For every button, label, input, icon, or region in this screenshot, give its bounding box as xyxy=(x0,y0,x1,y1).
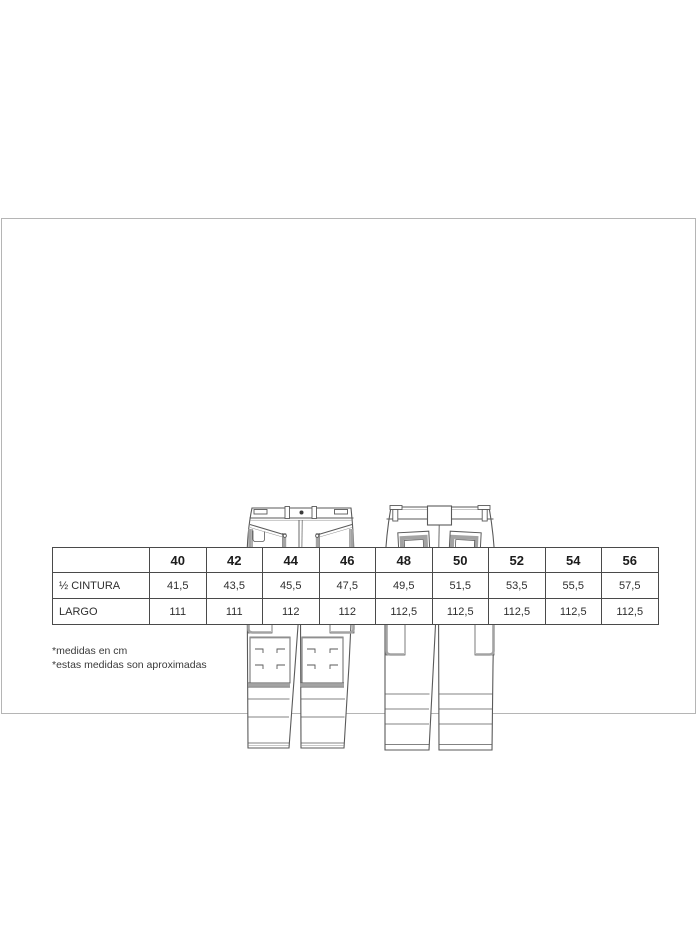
measurement-cell: 112,5 xyxy=(489,599,546,625)
measurement-cell: 49,5 xyxy=(376,573,433,599)
size-header-cell: 50 xyxy=(432,548,489,573)
row-label-largo: LARGO xyxy=(53,599,150,625)
pants-back-drawing-icon xyxy=(384,503,496,753)
size-header-cell: 46 xyxy=(319,548,376,573)
size-header-cell: 44 xyxy=(263,548,320,573)
measurement-cell: 112,5 xyxy=(602,599,659,625)
measurement-cell: 111 xyxy=(206,599,263,625)
measurement-cell: 41,5 xyxy=(150,573,207,599)
footnotes: *medidas en cm *estas medidas son aproxi… xyxy=(52,645,207,672)
measurement-cell: 112 xyxy=(263,599,320,625)
measurement-cell: 112 xyxy=(319,599,376,625)
footnote-approximate: *estas medidas son aproximadas xyxy=(52,659,207,673)
size-header-cell: 52 xyxy=(489,548,546,573)
size-guide-page: { "colors": { "thin_line": "#5a5a5a", "t… xyxy=(0,0,700,934)
measurement-cell: 45,5 xyxy=(263,573,320,599)
measurement-cell: 111 xyxy=(150,599,207,625)
size-header-cell: 42 xyxy=(206,548,263,573)
measurement-cell: 51,5 xyxy=(432,573,489,599)
size-header-row: 40 42 44 46 48 50 52 54 56 xyxy=(53,548,659,573)
size-chart-table: 40 42 44 46 48 50 52 54 56 ½ CINTURA 41,… xyxy=(52,547,659,625)
measurement-cell: 43,5 xyxy=(206,573,263,599)
size-header-empty-cell xyxy=(53,548,150,573)
measurement-row-largo: LARGO 111 111 112 112 112,5 112,5 112,5 … xyxy=(53,599,659,625)
sheet-border-frame xyxy=(1,218,696,714)
footnote-units: *medidas en cm xyxy=(52,645,207,659)
size-header-cell: 56 xyxy=(602,548,659,573)
measurement-cell: 57,5 xyxy=(602,573,659,599)
measurement-cell: 47,5 xyxy=(319,573,376,599)
size-header-cell: 40 xyxy=(150,548,207,573)
measurement-cell: 53,5 xyxy=(489,573,546,599)
measurement-cell: 112,5 xyxy=(432,599,489,625)
measurement-cell: 55,5 xyxy=(545,573,602,599)
measurement-cell: 112,5 xyxy=(545,599,602,625)
size-header-cell: 54 xyxy=(545,548,602,573)
measurement-row-cintura: ½ CINTURA 41,5 43,5 45,5 47,5 49,5 51,5 … xyxy=(53,573,659,599)
measurement-cell: 112,5 xyxy=(376,599,433,625)
size-header-cell: 48 xyxy=(376,548,433,573)
pants-front-drawing-icon xyxy=(246,505,356,751)
row-label-cintura: ½ CINTURA xyxy=(53,573,150,599)
